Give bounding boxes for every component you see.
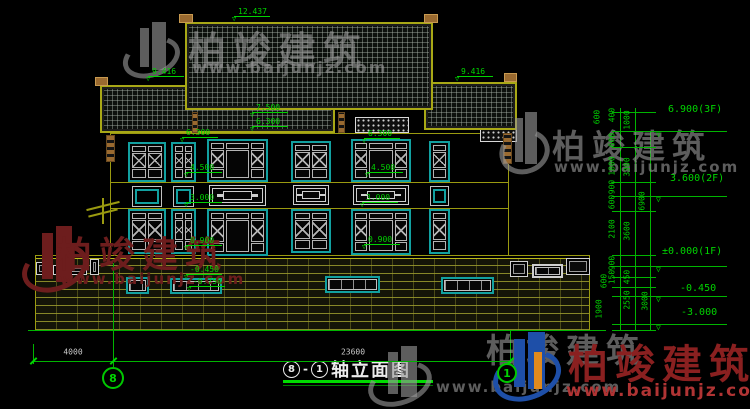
casement-x-pane — [251, 150, 264, 168]
dimension-value: 600 — [608, 133, 617, 147]
elevation-marker-line — [367, 172, 403, 173]
ornament-core — [223, 191, 252, 200]
elevation-marker: 9.416▽ — [461, 67, 485, 76]
casement-x-pane — [433, 152, 446, 168]
dimension-value: 2550 — [623, 290, 632, 309]
elevation-marker-line — [186, 172, 222, 173]
transom-pane — [148, 213, 162, 219]
small-window — [430, 186, 449, 206]
bottom-pane — [295, 169, 310, 178]
dimension-value: 600 — [593, 110, 602, 124]
level-triangle-icon: ▽ — [187, 286, 191, 293]
level-triangle-icon: ▽ — [365, 172, 369, 179]
elevation-marker-line — [457, 76, 493, 77]
transom-pane — [395, 213, 407, 219]
logo-building-bar — [515, 118, 523, 162]
elevation-marker: 3.000▽ — [190, 193, 214, 202]
casement-x-pane — [355, 150, 367, 168]
transom-pane — [295, 145, 310, 151]
window-center-column — [226, 213, 250, 252]
level-triangle-icon: ▽ — [250, 112, 254, 119]
brand-watermark-url: www.baijunjz.com — [566, 381, 750, 401]
dim-tick-line — [612, 266, 656, 267]
elevation-marker-line — [186, 274, 222, 275]
window-column — [312, 145, 327, 178]
window-column — [132, 146, 146, 178]
elevation-marker-line — [364, 244, 400, 245]
window-column — [295, 213, 310, 249]
parapet-baluster — [510, 261, 528, 277]
window-wide — [207, 139, 268, 182]
level-triangle-icon: ▽ — [656, 130, 661, 139]
elevation-marker-line — [182, 137, 218, 138]
elevation-marker: -3.000 — [681, 308, 717, 317]
casement-x-pane — [148, 153, 162, 168]
transom-pane — [251, 143, 264, 149]
bottom-pane — [295, 240, 310, 249]
elevation-marker: 0.900▽ — [190, 236, 214, 245]
dimension-value: 6900 — [638, 191, 647, 210]
logo-building-bar — [42, 233, 53, 279]
transom-pane — [312, 145, 327, 151]
dim-tick-line — [612, 196, 656, 197]
transom-pane — [175, 213, 183, 219]
elevation-marker-line — [655, 324, 727, 325]
dimension-value: 3300 — [623, 157, 632, 176]
dimension-value: 900 — [608, 256, 617, 270]
elevation-marker-line — [655, 296, 727, 297]
dimension-value: 600 — [600, 274, 609, 288]
logo-building-bar — [388, 352, 398, 394]
logo-building-bar — [140, 28, 149, 67]
glass-pane — [226, 150, 250, 178]
logo-building-bar — [525, 112, 537, 164]
window-center-column — [226, 143, 250, 178]
cad-elevation-canvas: 8 - 1 轴立面图 柏竣建筑www.baijunjz.com柏竣建筑www.b… — [0, 0, 750, 409]
transom-pane — [132, 213, 146, 219]
window-column — [312, 213, 327, 249]
elevation-marker-line — [186, 245, 222, 246]
casement-x-pane — [295, 220, 310, 239]
roof-finial — [95, 77, 108, 86]
floor-line — [110, 133, 508, 134]
elevation-marker-line — [362, 202, 398, 203]
elevation-marker-line — [148, 76, 184, 77]
side-canopy-post — [102, 198, 104, 224]
window-wide — [351, 209, 411, 255]
timber-post — [338, 112, 345, 133]
elevation-marker: 3.600(2F) — [670, 174, 724, 183]
level-triangle-icon: ▽ — [184, 245, 188, 252]
dimension-value: 4000 — [63, 348, 82, 357]
transom-pane — [355, 213, 367, 219]
window-column — [395, 213, 407, 251]
transom-pane — [369, 143, 392, 149]
window-column — [433, 213, 446, 250]
elevation-marker: -0.450 — [680, 284, 716, 293]
dim-tick-line — [612, 287, 656, 288]
level-triangle-icon: ▽ — [362, 244, 366, 251]
vent-glass — [444, 280, 491, 291]
casement-x-pane — [395, 150, 407, 168]
level-triangle-icon: ▽ — [146, 76, 150, 83]
casement-x-pane — [312, 152, 327, 168]
timber-post — [106, 135, 115, 162]
level-triangle-icon: ▽ — [656, 195, 661, 204]
casement-x-pane — [175, 153, 183, 168]
dim-tick-line — [612, 255, 656, 256]
basement-vent-window — [532, 264, 563, 278]
glass-pane — [226, 220, 250, 252]
small-window-glass — [433, 189, 446, 203]
level-triangle-icon: ▽ — [250, 126, 254, 133]
parapet-baluster — [566, 258, 590, 275]
dimension-value: 3600 — [623, 221, 632, 240]
dimension-value: 450 — [623, 270, 632, 284]
transom-pane — [185, 146, 193, 152]
transom-pane — [312, 213, 327, 219]
ornament-panel — [293, 185, 329, 205]
casement-x-pane — [312, 220, 327, 239]
elevation-marker-line — [189, 286, 225, 287]
dim-tick-line — [612, 131, 656, 132]
elevation-marker: 6.300▽ — [256, 117, 280, 126]
level-triangle-icon: ▽ — [184, 274, 188, 281]
bottom-pane — [132, 169, 146, 178]
ornament-panel-inner — [212, 188, 263, 203]
small-window-glass — [135, 189, 159, 204]
level-triangle-icon: ▽ — [656, 295, 661, 304]
dim-tick-line — [612, 182, 656, 183]
elevation-marker: 9.416▽ — [152, 67, 176, 76]
brand-logo-icon — [372, 346, 432, 408]
level-triangle-icon: ▽ — [232, 16, 236, 23]
bottom-pane — [395, 169, 407, 178]
transom-pane — [175, 146, 183, 152]
dimension-value: 1000 — [623, 110, 632, 129]
brand-logo-icon — [503, 112, 549, 176]
window-center-column — [369, 213, 392, 251]
transom-pane — [132, 146, 146, 152]
casement-x-pane — [295, 152, 310, 168]
window-column — [295, 145, 310, 178]
bottom-pane — [175, 169, 183, 178]
transom-pane — [295, 213, 310, 219]
basement-vent-window — [441, 277, 494, 294]
level-triangle-icon: ▽ — [184, 172, 188, 179]
dimension-value: 2100 — [608, 219, 617, 238]
vent-glass — [535, 267, 560, 275]
elevation-marker-line — [252, 112, 288, 113]
logo-building-accent — [534, 352, 542, 390]
ornament-core — [302, 191, 319, 199]
title-axis-bubble-8: 8 — [283, 361, 300, 378]
bottom-dimension-line — [33, 361, 510, 362]
elevation-marker: 4.500▽ — [371, 163, 395, 172]
elevation-marker: ±0.000(1F) — [662, 247, 722, 256]
dim-tick-line — [612, 147, 656, 148]
elevation-marker: 6.300▽ — [186, 128, 210, 137]
elevation-marker-line — [186, 202, 222, 203]
window-column — [433, 145, 446, 178]
transom-pane — [251, 213, 264, 219]
transom-pane — [395, 143, 407, 149]
elevation-marker-line — [252, 126, 288, 127]
window — [429, 209, 450, 254]
elevation-marker-line — [655, 131, 727, 132]
level-triangle-icon: ▽ — [455, 76, 459, 83]
brand-watermark-url: www.baijunjz.com — [192, 58, 387, 77]
ornament-panel-inner — [296, 188, 326, 202]
small-window — [132, 186, 162, 207]
level-triangle-icon: ▽ — [656, 265, 661, 274]
logo-building-bar — [401, 346, 417, 397]
bottom-pane — [148, 169, 162, 178]
level-triangle-icon: ▽ — [362, 138, 366, 145]
transom-pane — [211, 213, 224, 219]
dimension-value: 150 — [608, 270, 617, 284]
dim-tick-line — [612, 330, 656, 331]
dimension-value: 23600 — [341, 348, 365, 357]
elevation-marker: -0.450▽ — [190, 265, 219, 274]
elevation-marker-line — [655, 266, 727, 267]
casement-x-pane — [132, 153, 146, 168]
window — [429, 141, 450, 182]
dim-tick-line — [612, 277, 656, 278]
elevation-marker-line — [364, 138, 400, 139]
title-axis-bubble-1: 1 — [311, 361, 328, 378]
level-triangle-icon: ▽ — [360, 202, 364, 209]
roof-finial — [424, 14, 438, 23]
elevation-marker: 4.500▽ — [190, 163, 214, 172]
window — [291, 209, 331, 253]
transom-pane — [433, 213, 446, 219]
level-triangle-icon: ▽ — [184, 202, 188, 209]
logo-building-bar — [152, 22, 167, 70]
elevation-marker: 6.900(3F) — [668, 105, 722, 114]
transom-pane — [369, 213, 392, 219]
level-triangle-icon: ▽ — [180, 137, 184, 144]
dim-tick-line — [612, 324, 656, 325]
bottom-pane — [312, 169, 327, 178]
logo-building-bar — [514, 339, 525, 387]
elevation-marker: -0.750▽ — [193, 277, 222, 286]
elevation-marker: 12.437▽ — [238, 7, 267, 16]
transom-pane — [148, 146, 162, 152]
transom-pane — [226, 213, 250, 219]
elevation-marker: 7.500▽ — [256, 103, 280, 112]
dimension-value: 600 — [608, 195, 617, 209]
basement-vent-window — [325, 276, 380, 293]
title-separator: - — [303, 362, 308, 376]
elevation-marker: 0.900▽ — [368, 235, 392, 244]
bottom-pane — [312, 240, 327, 249]
window-column — [251, 213, 264, 252]
transom-pane — [433, 145, 446, 151]
window-column — [148, 146, 162, 178]
casement-x-pane — [395, 220, 407, 241]
bottom-pane — [433, 169, 446, 178]
dim-tick-line — [612, 112, 656, 113]
dimension-value: 3000 — [641, 291, 650, 310]
elevation-marker-line — [234, 16, 270, 17]
transom-pane — [226, 143, 250, 149]
floor-line — [110, 182, 508, 183]
dimension-value: 400 — [608, 108, 617, 122]
transom-pane — [185, 213, 193, 219]
elevation-marker-line — [655, 196, 727, 197]
elevation-marker: 3.000▽ — [366, 193, 390, 202]
window — [291, 141, 331, 182]
bottom-pane — [433, 241, 446, 250]
casement-x-pane — [251, 220, 264, 242]
roof-finial — [504, 73, 517, 82]
transom-pane — [211, 143, 224, 149]
dim-tick-line — [612, 211, 656, 212]
level-triangle-icon: ▽ — [656, 323, 661, 332]
casement-x-pane — [433, 220, 446, 240]
dimension-value: 1800 — [608, 156, 617, 175]
casement-x-pane — [355, 220, 367, 241]
window-column — [175, 146, 183, 178]
window-column — [251, 143, 264, 178]
axis-bubble-8: 8 — [102, 367, 124, 389]
bottom-pane — [251, 169, 264, 178]
vent-glass — [328, 279, 377, 290]
window — [128, 142, 166, 182]
elevation-marker: 6.300▽ — [368, 129, 392, 138]
dimension-value: 900 — [608, 180, 617, 194]
window-wide — [351, 139, 411, 182]
axis-bubble-1: 1 — [497, 363, 517, 383]
bottom-pane — [251, 243, 264, 252]
dimension-value: 1900 — [595, 299, 604, 318]
